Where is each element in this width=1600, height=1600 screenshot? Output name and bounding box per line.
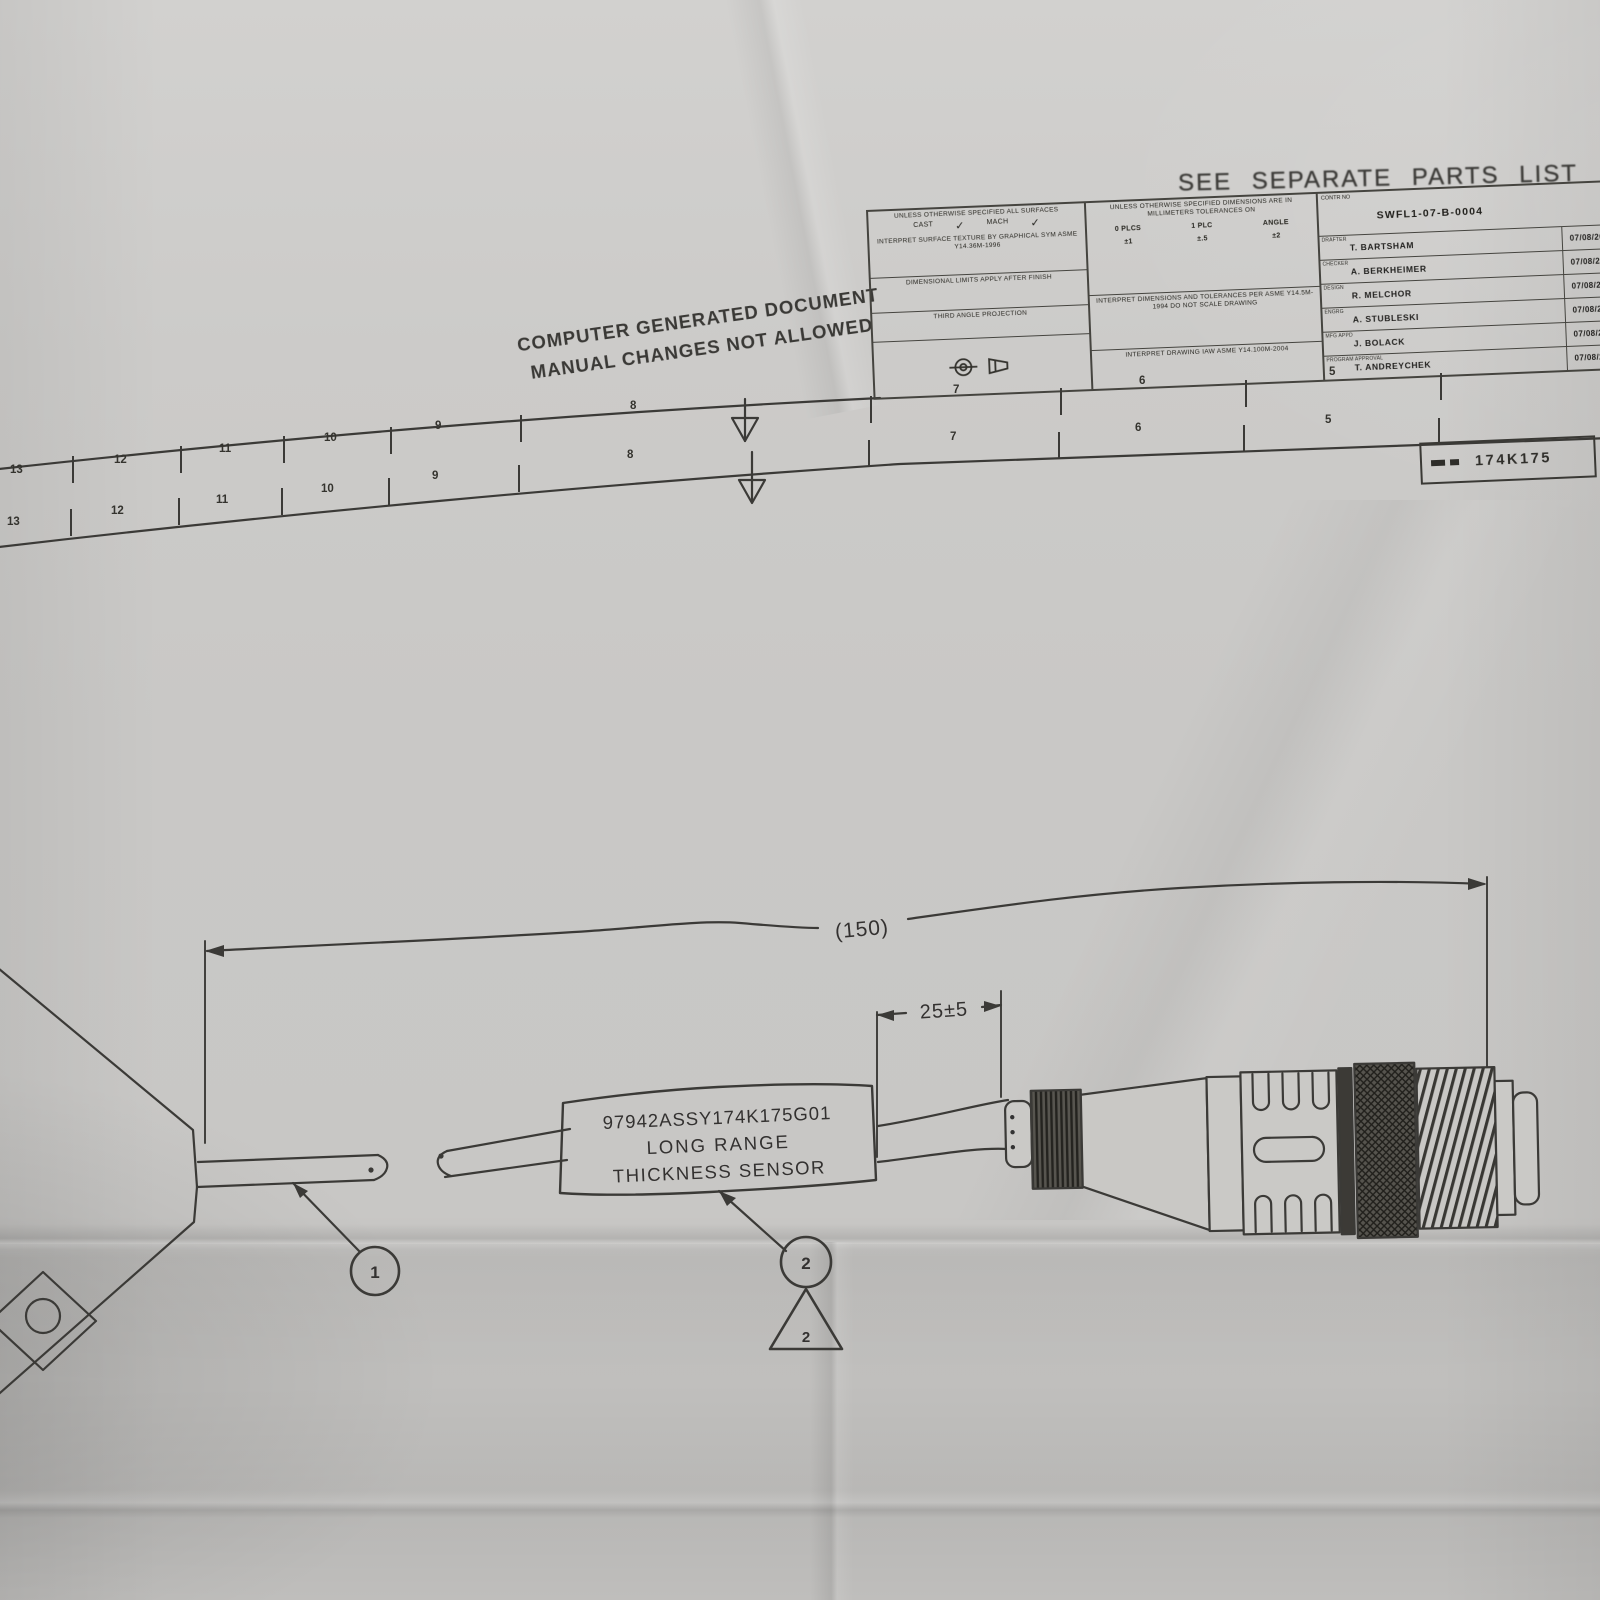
projection-symbol-cell [873,333,1091,398]
tolerance-val-1plc: ±.5 [1165,233,1239,245]
fixture-hole [26,1299,60,1333]
connector-strain-relief [1031,1090,1083,1189]
tolerance-col-1plc: 1 PLC [1165,220,1239,232]
connector-tip [1513,1092,1539,1204]
connector-ring [1206,1076,1243,1231]
cast-checkmark: ✓ [955,219,965,234]
approval-role: DESIGN [1323,285,1344,292]
drawing-note-cell: INTERPRET DRAWING IAW ASME Y14.100M-2004 [1092,341,1323,389]
sensor-label-line3: THICKNESS SENSOR [612,1156,826,1186]
connector-dim-label: 25±5 [919,998,969,1023]
fixture-outline [0,963,197,1400]
drawing-note: INTERPRET DRAWING IAW ASME Y14.100M-2004 [1125,345,1289,359]
sensor-label-line2: LONG RANGE [646,1131,790,1158]
sensor-part-number: 97942ASSY174K175G01 [602,1102,832,1133]
tolerance-cell: UNLESS OTHERWISE SPECIFIED DIMENSIONS AR… [1086,194,1320,295]
projection-note: THIRD ANGLE PROJECTION [933,310,1027,321]
mach-checkmark: ✓ [1030,216,1040,231]
overall-dim-label: (150) [834,916,890,944]
scale-mark [1431,460,1445,467]
contract-number: SWFL1-07-B-0004 [1376,205,1483,221]
probe-rod [197,1129,570,1187]
approval-rows: DRAFTERT. BARTSHAM07/08/20CHECKERA. BERK… [1319,221,1600,379]
tolerance-col-0plcs: 0 PLCS [1091,223,1165,235]
balloon-2 [719,1191,831,1287]
surface-finish-cell: UNLESS OTHERWISE SPECIFIED ALL SURFACES … [868,203,1086,278]
mach-label: MACH [986,218,1008,233]
connector-back-cap [1005,1101,1032,1168]
revision-triangle-number: 2 [802,1329,810,1346]
photo-of-engineering-drawing: (150) 25±5 [0,0,1600,1600]
balloon-1 [293,1183,399,1295]
title-block-surface-column: UNLESS OTHERWISE SPECIFIED ALL SURFACES … [868,203,1093,398]
balloon-2-number: 2 [801,1254,810,1273]
tolerance-val-angle: ±2 [1239,230,1313,242]
border-line-lower [0,438,1600,548]
connector-band [1338,1068,1354,1234]
connector-boot [1081,1078,1210,1233]
tolerance-col-angle: ANGLE [1239,217,1313,229]
connector-knurl [1354,1063,1418,1238]
tolerance-header: UNLESS OTHERWISE SPECIFIED DIMENSIONS AR… [1110,197,1293,218]
balloon-1-number: 1 [370,1263,379,1282]
tolerance-val-0plcs: ±1 [1091,236,1165,248]
approval-date: 07/08/20 [1565,318,1600,346]
approval-role: DRAFTER [1321,237,1346,244]
title-block-tolerance-column: UNLESS OTHERWISE SPECIFIED DIMENSIONS AR… [1086,194,1325,389]
cable [878,1100,1008,1162]
scale-mark [1450,459,1459,465]
drawing-number: 174K175 [1475,450,1553,469]
limits-note: DIMENSIONAL LIMITS APPLY AFTER FINISH [906,274,1052,287]
approval-date: 07/08/20 [1564,294,1600,322]
cast-label: CAST [913,221,933,236]
connector [1004,1060,1540,1245]
approval-date: 07/08/20 [1563,270,1600,298]
approval-role: ENGRG [1324,309,1344,316]
approval-date: 07/08/20 [1562,246,1600,274]
third-angle-projection-icon [947,352,1018,381]
title-block: UNLESS OTHERWISE SPECIFIED ALL SURFACES … [866,178,1600,400]
centerfold-mark-lower [739,452,765,503]
connector-threads [1416,1067,1497,1229]
drawing-number-box: 174K175 [1419,435,1597,484]
dims-note-cell: INTERPRET DIMENSIONS AND TOLERANCES PER … [1090,286,1322,350]
approval-date: 07/08/20 [1561,222,1600,250]
approval-date: 07/08/20 [1566,342,1600,370]
approval-role: CHECKER [1322,261,1348,268]
contract-label: CONTR NO [1321,195,1351,203]
approval-role: MFG APPD [1325,333,1353,340]
title-block-approvals-column: CONTR NO SWFL1-07-B-0004 DRAFTERT. BARTS… [1318,179,1600,379]
